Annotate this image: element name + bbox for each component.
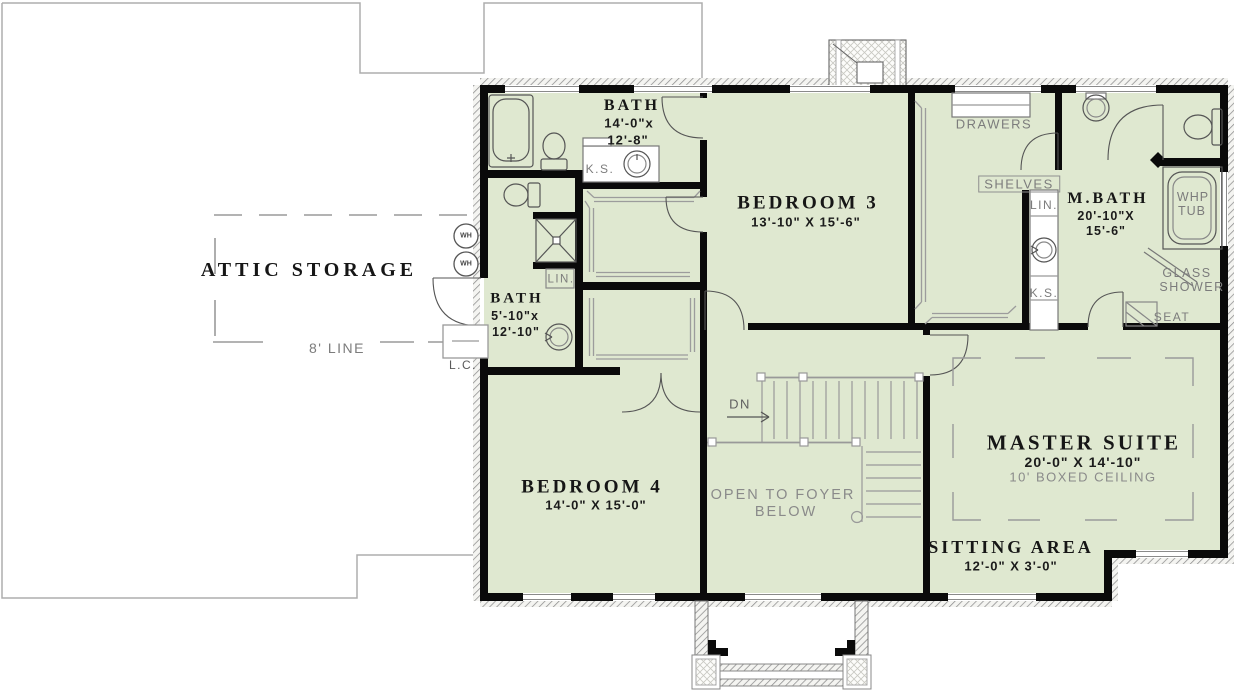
bedroom4-dims: 14'-0" X 15'-0" [545,499,646,512]
attic-storage-label: ATTIC STORAGE [201,260,417,280]
eight-foot-line-label: 8' LINE [309,341,365,355]
master-bath-name: M.BATH [1067,191,1148,207]
boxed-ceiling-note: 10' BOXED CEILING [1009,471,1156,484]
entry-porch [692,601,871,689]
bath-upper-dim1: 14'-0"x [604,117,654,130]
bath-lower-name: BATH [490,292,543,307]
water-heater-label-2: WH [460,261,472,268]
bedroom3-dims: 13'-10" X 15'-6" [751,216,861,229]
sitting-area-name: SITTING AREA [928,538,1094,556]
stairs-down-label: DN [729,398,751,411]
bath-upper-name: BATH [604,98,660,114]
linen-label-lower: LIN. [547,274,574,286]
laundry-chute-label: L.C. [449,359,477,371]
open-to-foyer-line2: BELOW [755,505,817,520]
sitting-area-dims: 12'-0" X 3'-0" [964,560,1057,573]
drawers-unit [952,93,1030,117]
bedroom4-name: BEDROOM 4 [521,478,663,497]
bath-upper-dim2: 12'-8" [607,134,648,147]
open-to-foyer-line1: OPEN TO FOYER [711,488,856,503]
floor-plan-page: ATTIC STORAGE 8' LINE L.C. WH WH BATH 14… [0,0,1234,690]
water-heater-label-1: WH [460,233,472,240]
glass-shower-label-2: SHOWER [1159,281,1224,294]
chimney [829,40,906,86]
bath-lower-dim2: 12'-10" [492,326,540,339]
bath-lower-dim1: 5'-10"x [491,310,539,323]
master-bath-dim1: 20'-10"X [1077,210,1134,223]
bedroom3-name: BEDROOM 3 [737,194,879,213]
shelves-label: SHELVES [978,176,1060,193]
linen-label-master: LIN. [1030,199,1058,211]
drawers-label: DRAWERS [956,118,1032,131]
seat-label: SEAT [1154,311,1190,323]
knee-space-label-master: K.S. [1030,287,1059,299]
master-suite-name: MASTER SUITE [987,433,1181,454]
glass-shower-label-1: GLASS [1162,267,1211,280]
whp-tub-label-2: TUB [1178,205,1206,218]
master-bath-dim2: 15'-6" [1086,225,1126,238]
whp-tub-label-1: WHP [1177,191,1209,204]
master-suite-dims: 20'-0" X 14'-10" [1025,455,1142,469]
knee-space-label-upper: K.S. [586,163,615,175]
